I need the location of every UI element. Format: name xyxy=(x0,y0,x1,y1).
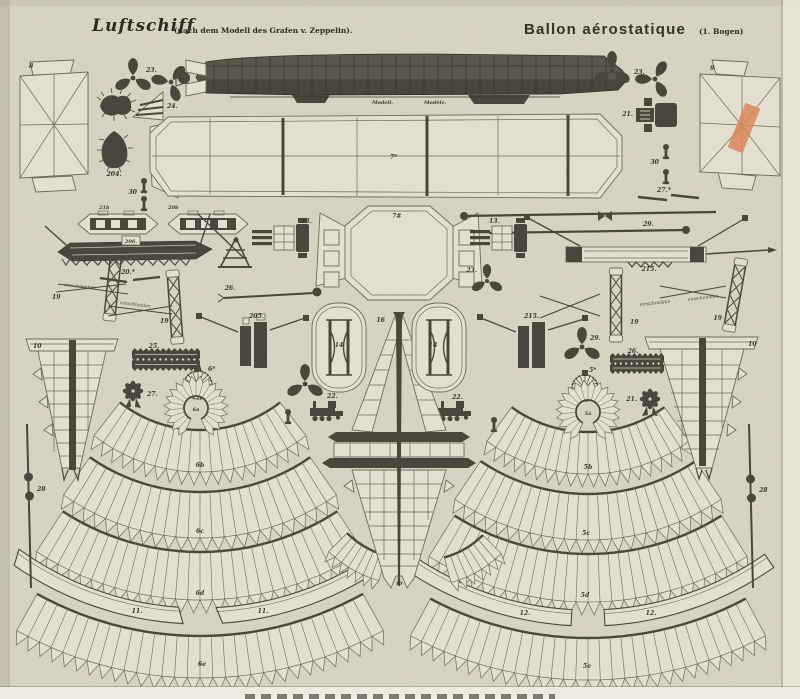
subtitle-german: (nach dem Modell des Grafen v. Zeppelin)… xyxy=(174,26,352,35)
title-french: Ballon aérostatique xyxy=(524,21,686,38)
paper-texture xyxy=(0,0,800,699)
model-sheet: Luftschiff (nach dem Modell des Grafen v… xyxy=(0,0,800,699)
sheet-number: (1. Bogen) xyxy=(699,27,743,36)
sheet-drawing: 6b 6c 6d 6e 11. 11. 5b 5c 5d 5e 12. 12. xyxy=(0,0,800,699)
